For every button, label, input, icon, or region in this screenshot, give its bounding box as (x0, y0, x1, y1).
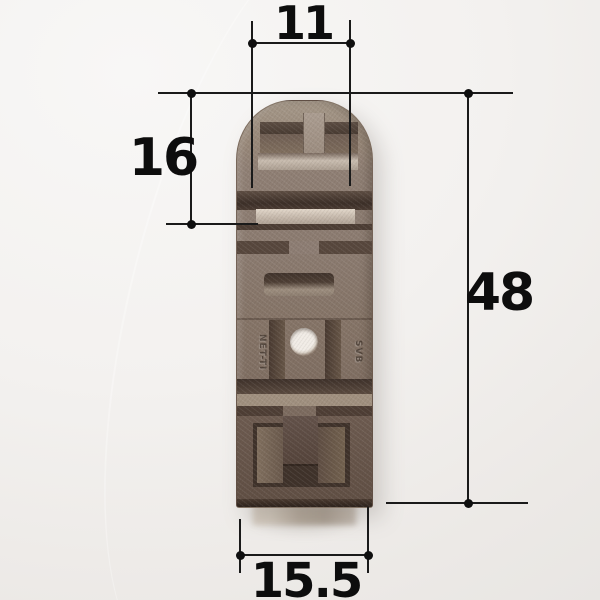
middle-slot (264, 273, 334, 296)
dim-label-upper-height: 16 (110, 132, 216, 184)
dim-dot (464, 89, 473, 98)
plastic-part-photo: NET-TI SVB (233, 98, 375, 546)
bottom-edge (237, 499, 372, 507)
top-slot-right-wall (323, 134, 358, 154)
bottom-pocket-left-face (257, 427, 283, 483)
dim-dot (464, 499, 473, 508)
datum-line-top (158, 92, 513, 94)
groove-band-center-tab (289, 241, 319, 254)
bottom-pocket-right-face (318, 427, 345, 483)
top-slot-floor (258, 153, 358, 170)
dim-label-overall-height: 48 (446, 267, 552, 319)
tick-line-upper-height (166, 223, 258, 225)
bright-rib (256, 209, 355, 224)
groove-above-block-tab (283, 406, 316, 416)
screw-hole (290, 328, 318, 356)
tick-line-overall-height (386, 502, 528, 504)
cross-right-groove (325, 320, 341, 379)
cross-left-groove (269, 320, 285, 379)
top-center-tab (303, 113, 325, 154)
groove-lower (237, 379, 372, 394)
dim-label-bottom-width: 15.5 (216, 557, 396, 600)
embossed-text-right: SVB (345, 325, 363, 379)
part-body: NET-TI SVB (236, 100, 373, 508)
bottom-center-tab (283, 416, 318, 466)
part-foot (253, 505, 356, 525)
product-photo-stage: NET-TI SVB 11 16 (0, 0, 600, 600)
groove-upper (237, 191, 372, 210)
dim-dot (187, 220, 196, 229)
dim-dot (187, 89, 196, 98)
cross-top-edge (237, 318, 372, 320)
top-slot-left-wall (260, 134, 303, 154)
embossed-text-left: NET-TI (249, 325, 267, 379)
dim-label-top-width: 11 (243, 0, 363, 46)
light-band-lower (237, 394, 372, 406)
